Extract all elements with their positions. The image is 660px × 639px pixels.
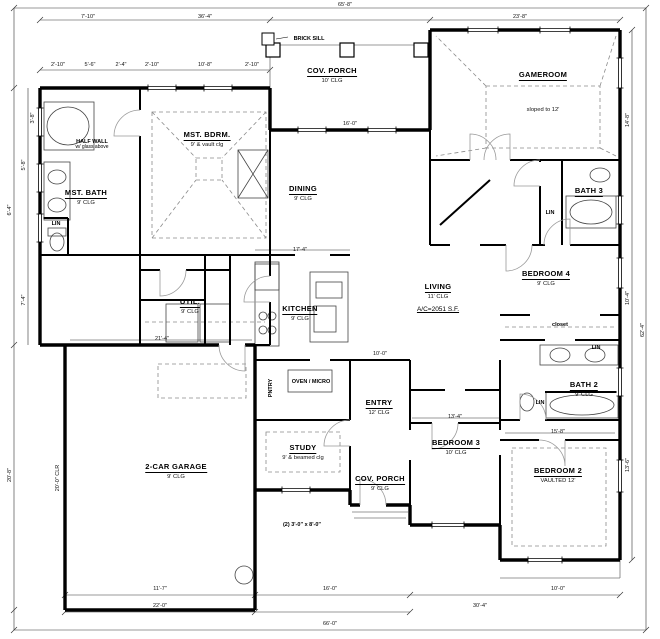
- room-ceiling-note: 9' CLG: [65, 200, 107, 207]
- dimension-text: 11'-7": [153, 586, 167, 592]
- dimension-text: 5'-6": [85, 62, 96, 68]
- dimension-text: 36'-4": [198, 14, 212, 20]
- room-label-cov-porch-bottom: COV. PORCH9' CLG: [355, 468, 405, 493]
- room-label-dining: DINING9' CLG: [289, 178, 317, 203]
- room-name: MST. BDRM.: [184, 131, 231, 141]
- room-label-util: UTIL.9' CLG: [180, 291, 200, 316]
- room-name: KITCHEN: [282, 305, 317, 315]
- room-label-garage: 2-CAR GARAGE9' CLG: [145, 456, 207, 481]
- dimension-text: 23'-8": [513, 14, 527, 20]
- floorplan-sheet: COV. PORCH10' CLGGAMEROOMsloped to 12'MS…: [0, 0, 660, 639]
- note-lin-bath2-b: LIN: [536, 400, 545, 406]
- room-ceiling-note: VAULTED 12': [534, 478, 582, 485]
- note-text: PNTRY: [268, 379, 274, 397]
- note-oven-micro: OVEN / MICRO: [292, 379, 331, 385]
- room-label-bath-3: BATH 3: [575, 180, 603, 198]
- dimension-text: 16'-0": [323, 586, 337, 592]
- dimension-text: 20'-0" CLR: [55, 465, 61, 492]
- dimension-text: 30'-4": [473, 603, 487, 609]
- room-ceiling-note: 9' CLG: [282, 316, 317, 323]
- dimension-text: 3'-8": [30, 113, 36, 124]
- dimension-text: 13'-4": [448, 414, 462, 420]
- room-name: DINING: [289, 185, 317, 195]
- room-label-mst-bdrm: MST. BDRM.9' & vault clg: [184, 124, 231, 149]
- room-name: UTIL.: [180, 298, 200, 308]
- dimension-text: 16'-0": [343, 121, 357, 127]
- note-half-wall: HALF WALLw/ glass above: [75, 139, 108, 151]
- room-name: COV. PORCH: [355, 475, 405, 485]
- note-text: LIN: [52, 221, 61, 227]
- note-text: (2) 3'-0" x 8'-0": [283, 522, 321, 528]
- room-label-mst-bath: MST. BATH9' CLG: [65, 182, 107, 207]
- room-label-bath-2: BATH 29' CLG: [570, 374, 598, 399]
- note-text: LIN: [592, 345, 601, 351]
- room-name: 2-CAR GARAGE: [145, 463, 207, 473]
- dimension-text: 10'-0": [551, 586, 565, 592]
- dimension-text: 2'-4": [116, 62, 127, 68]
- dimension-text: 2'-10": [145, 62, 159, 68]
- room-label-living: LIVING11' CLGA/C=2051 S.F.: [417, 276, 459, 314]
- room-label-kitchen: KITCHEN9' CLG: [282, 298, 317, 323]
- room-ceiling-note: 10' CLG: [432, 450, 480, 457]
- dimension-text: 10'-8": [198, 62, 212, 68]
- note-text: LIN: [546, 210, 555, 216]
- room-ceiling-note: 11' CLG: [417, 294, 459, 301]
- dimension-text: 5'-8": [21, 160, 27, 171]
- room-name: BEDROOM 4: [522, 270, 570, 280]
- dimension-text: 17'-4": [293, 247, 307, 253]
- dimension-text: 66'-0": [323, 621, 337, 627]
- note-closet-bed4: closet: [552, 322, 568, 328]
- note-lin-bath2-a: LIN: [592, 345, 601, 351]
- labels-layer: COV. PORCH10' CLGGAMEROOMsloped to 12'MS…: [0, 0, 660, 639]
- room-name: BATH 2: [570, 381, 598, 391]
- dimension-text: 7'-4": [21, 295, 27, 306]
- room-label-cov-porch-top: COV. PORCH10' CLG: [307, 60, 357, 85]
- dimension-text: 15'-8": [551, 429, 565, 435]
- dimension-text: 65'-8": [338, 2, 352, 8]
- dimension-text: 10'-4": [625, 291, 631, 305]
- room-ceiling-note: sloped to 12': [519, 107, 567, 114]
- dimension-text: 13'-6": [625, 458, 631, 472]
- note-lin-master: LIN: [52, 221, 61, 227]
- note-text: OVEN / MICRO: [292, 379, 331, 385]
- room-ceiling-note: 9' CLG: [145, 474, 207, 481]
- room-area-note: A/C=2051 S.F.: [417, 306, 459, 313]
- room-ceiling-note: 9' & beamed clg: [282, 455, 323, 462]
- dimension-text: 2'-10": [51, 62, 65, 68]
- room-ceiling-note: 9' CLG: [355, 486, 405, 493]
- room-label-bedroom-2: BEDROOM 2VAULTED 12': [534, 460, 582, 485]
- room-label-bedroom-3: BEDROOM 310' CLG: [432, 432, 480, 457]
- note-subtext: w/ glass above: [75, 145, 108, 151]
- room-name: STUDY: [290, 444, 317, 454]
- dimension-text: 2'-10": [245, 62, 259, 68]
- dimension-text: 7'-10": [81, 14, 95, 20]
- room-ceiling-note: 12' CLG: [366, 410, 393, 417]
- note-text: LIN: [536, 400, 545, 406]
- room-ceiling-note: 9' CLG: [522, 281, 570, 288]
- note-door-note: (2) 3'-0" x 8'-0": [283, 522, 321, 528]
- room-name: BEDROOM 3: [432, 439, 480, 449]
- room-ceiling-note: 9' CLG: [180, 309, 200, 316]
- room-label-gameroom: GAMEROOMsloped to 12': [519, 64, 567, 114]
- room-name: BEDROOM 2: [534, 467, 582, 477]
- room-name: COV. PORCH: [307, 67, 357, 77]
- dimension-text: 14'-8": [625, 113, 631, 127]
- room-label-entry: ENTRY12' CLG: [366, 392, 393, 417]
- dimension-text: 6'-4": [7, 205, 13, 216]
- room-label-bedroom-4: BEDROOM 49' CLG: [522, 263, 570, 288]
- room-ceiling-note: 9' & vault clg: [184, 142, 231, 149]
- note-text: BRICK SILL: [294, 36, 325, 42]
- room-label-study: STUDY9' & beamed clg: [282, 437, 323, 462]
- dimension-text: 22'-0": [153, 603, 167, 609]
- dimension-text: 20'-8": [7, 468, 13, 482]
- room-ceiling-note: 9' CLG: [289, 196, 317, 203]
- note-text: closet: [552, 322, 568, 328]
- dimension-text: 62'-4": [640, 323, 646, 337]
- note-brick-sill: BRICK SILL: [294, 36, 325, 42]
- room-name: MST. BATH: [65, 189, 107, 199]
- room-name: GAMEROOM: [519, 71, 567, 81]
- room-name: BATH 3: [575, 187, 603, 197]
- room-name: LIVING: [425, 283, 452, 293]
- note-lin-bath3: LIN: [546, 210, 555, 216]
- dimension-text: 10'-0": [373, 351, 387, 357]
- dimension-text: 21'-4": [155, 336, 169, 342]
- room-ceiling-note: 10' CLG: [307, 78, 357, 85]
- room-ceiling-note: 9' CLG: [570, 392, 598, 399]
- room-name: ENTRY: [366, 399, 393, 409]
- note-pantry: PNTRY: [268, 379, 274, 397]
